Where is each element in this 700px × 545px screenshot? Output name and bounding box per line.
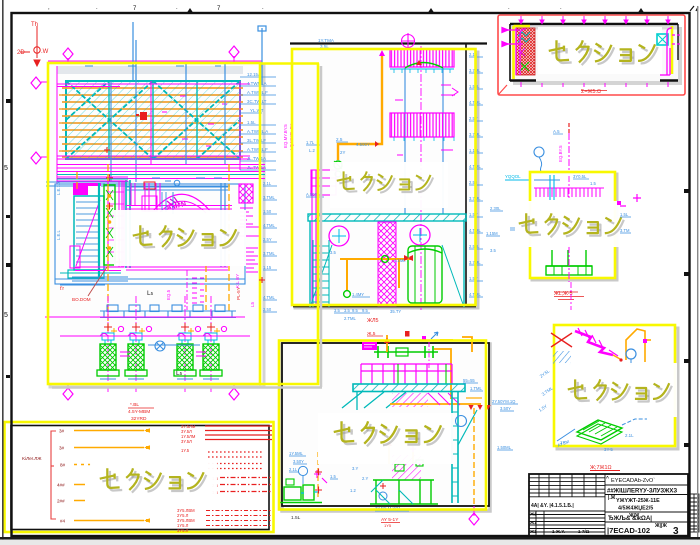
svg-text:ЖЛ5: ЖЛ5 (367, 318, 379, 324)
svg-text:1.2: 1.2 (350, 488, 356, 493)
svg-text:|7ЕCAD-102: |7ЕCAD-102 (607, 526, 650, 535)
svg-text:3.Y: 3.Y (352, 466, 358, 471)
svg-text:1.50: 1.50 (263, 209, 272, 214)
svg-text:#4: #4 (60, 519, 66, 524)
svg-text:1.TML: 1.TML (470, 386, 483, 391)
svg-text:L.E.L: L.E.L (56, 230, 61, 240)
svg-text:1.5L: 1.5L (247, 120, 256, 125)
svg-text:YЖYЖT-25Ж-11Е: YЖYЖT-25Ж-11Е (616, 498, 660, 504)
svg-text:5: 5 (4, 312, 8, 319)
svg-text:1Y.5ML: 1Y.5ML (289, 451, 304, 456)
svg-text:2.5Y: 2.5Y (263, 237, 272, 242)
svg-text:4.TWMLA: 4.TWMLA (247, 81, 267, 86)
svg-text:YL.WT: YL.WT (250, 108, 264, 113)
svg-text:Ж1: Ж1 (529, 512, 537, 517)
svg-text:3Y.5Л: 3Y.5Л (181, 439, 192, 444)
svg-text:EQ.MY.BY.5: EQ.MY.BY.5 (283, 124, 288, 148)
svg-text:5: 5 (4, 165, 8, 172)
svg-text:3.50Y: 3.50Y (500, 406, 511, 411)
svg-text:3#: 3# (59, 429, 65, 434)
svg-text:1Y.5: 1Y.5 (181, 448, 190, 453)
svg-text:3Y0.5L: 3Y0.5L (573, 174, 587, 179)
svg-text:t'r: t'r (60, 286, 64, 292)
svg-text:2.TML: 2.TML (344, 316, 357, 321)
svg-text:2.1L: 2.1L (263, 181, 272, 186)
svg-text:1.5L: 1.5L (620, 212, 629, 217)
svg-text:EQ.BY.5: EQ.BY.5 (558, 145, 563, 162)
svg-text:.W: .W (41, 49, 49, 55)
svg-text:A.5: A.5 (553, 129, 560, 134)
svg-text:1Y: 1Y (560, 440, 565, 445)
svg-text:3.5: 3.5 (334, 308, 340, 313)
svg-text:L.E.1.7: L.E.1.7 (56, 181, 61, 195)
svg-text:1.15: 1.15 (263, 265, 272, 270)
svg-text:3.5: 3.5 (330, 250, 336, 255)
svg-text:Ж1: Ж1 (529, 520, 537, 525)
svg-text:3C.TW.LT: 3C.TW.LT (247, 99, 267, 104)
svg-text:A.TWML.F: A.TWML.F (247, 90, 268, 95)
svg-text:Ж||Ж: Ж||Ж (654, 523, 667, 529)
svg-text:55=55: 55=55 (463, 378, 475, 383)
svg-text:1.7L: 1.7L (306, 140, 315, 145)
svg-text:A.TWML.F: A.TWML.F (247, 147, 268, 152)
svg-text:PL-5Y: PL-5Y (236, 287, 241, 300)
svg-text:2.1L: 2.1L (289, 467, 298, 472)
svg-text:1.5L: 1.5L (291, 515, 301, 521)
svg-text:1Y5: 1Y5 (384, 523, 392, 528)
svg-text:1.50ML: 1.50ML (497, 445, 512, 450)
svg-text:2.Y: 2.Y (362, 476, 368, 481)
svg-text:2.50: 2.50 (263, 307, 272, 312)
svg-text:^: ^ (606, 476, 609, 482)
svg-text:##ЖIШЛERYУ-ЗЛУЗЖХЗ: ##ЖIШЛERYУ-ЗЛУЗЖХЗ (607, 489, 677, 495)
svg-text:9.5: 9.5 (362, 308, 368, 313)
svg-text:*.BL: *.BL (130, 402, 139, 408)
svg-text:|.Ж: |.Ж (608, 495, 616, 501)
svg-text:1.4MY: 1.4MY (352, 292, 364, 297)
svg-text:1 7/Ω: 1 7/Ω (578, 529, 590, 534)
svg-text:YQQOL: YQQOL (505, 174, 521, 179)
svg-text:K.L BY: K.L BY (235, 274, 240, 288)
svg-text:1.5: 1.5 (330, 474, 336, 479)
svg-text:1.15M: 1.15M (486, 231, 498, 236)
svg-text:Ж|Ж: Ж|Ж (628, 513, 640, 519)
svg-text:EQ.5: EQ.5 (166, 289, 171, 300)
svg-text:2D: 2D (17, 50, 25, 56)
svg-text:L.2: L.2 (309, 148, 315, 153)
svg-text:4.5Y-MBM: 4.5Y-MBM (128, 409, 150, 415)
svg-text:1Y.TMA: 1Y.TMA (318, 38, 335, 43)
svg-text:A.TWML.A: A.TWML.A (247, 129, 268, 134)
svg-text:2.5: 2.5 (336, 137, 343, 142)
svg-text:8#: 8# (60, 463, 66, 468)
svg-text:4.TML: 4.TML (263, 223, 276, 228)
svg-text:4##: 4## (57, 483, 65, 488)
svg-text:L5: L5 (250, 301, 255, 307)
svg-text:EYECADAb-ZvO`: EYECADAb-ZvO` (611, 478, 655, 484)
svg-text:3.TML: 3.TML (263, 251, 276, 256)
svg-text:3#: 3# (59, 446, 65, 451)
svg-text:4.500Y: 4.500Y (356, 142, 370, 147)
svg-text:Th: Th (31, 22, 38, 28)
svg-text:JL.TW.1A: JL.TW.1A (247, 156, 266, 161)
svg-text:2Y: 2Y (340, 150, 345, 155)
svg-text:3Y-5: 3Y-5 (604, 447, 613, 452)
svg-text:4.TML: 4.TML (263, 295, 276, 300)
svg-text:3L.TW.LF: 3L.TW.LF (247, 138, 266, 143)
svg-text:3Y5.Л: 3Y5.Л (177, 528, 189, 533)
svg-text:4.1ML: 4.1ML (394, 258, 406, 263)
svg-text:KiЛer.ЛЖ: KiЛer.ЛЖ (22, 456, 42, 461)
svg-text:4/5Ж4ЖЏЕ2/5: 4/5Ж4ЖЏЕ2/5 (618, 506, 653, 512)
svg-text:3.TML: 3.TML (263, 195, 276, 200)
svg-text:4A| &Y. |4.1.5.1.Б.|: 4A| &Y. |4.1.5.1.Б.| (531, 503, 574, 509)
svg-text:1.5: 1.5 (590, 181, 596, 186)
svg-text:35.TY: 35.TY (390, 309, 401, 314)
svg-text:Σ=Ж5.Ω: Σ=Ж5.Ω (581, 89, 601, 95)
svg-text:3.5: 3.5 (490, 248, 496, 253)
svg-text:Ж1: Ж1 (529, 529, 537, 534)
svg-text:2.30L: 2.30L (490, 206, 501, 211)
svg-text:2.1L: 2.1L (625, 433, 634, 438)
svg-text:2##: 2## (57, 499, 65, 504)
svg-text:9.5: 9.5 (352, 308, 358, 313)
svg-text:3.50Y: 3.50Y (293, 459, 304, 464)
svg-text:3.TM: 3.TM (620, 228, 630, 233)
svg-text:L5: L5 (147, 290, 154, 297)
svg-text:A.50Y: A.50Y (306, 192, 318, 197)
svg-text:1 Ж.Y.: 1 Ж.Y. (552, 529, 565, 534)
svg-text:2Y.50YM.1Q: 2Y.50YM.1Q (492, 399, 516, 404)
svg-text:3.5: 3.5 (344, 308, 350, 313)
svg-text:BO.DOM: BO.DOM (72, 297, 91, 302)
